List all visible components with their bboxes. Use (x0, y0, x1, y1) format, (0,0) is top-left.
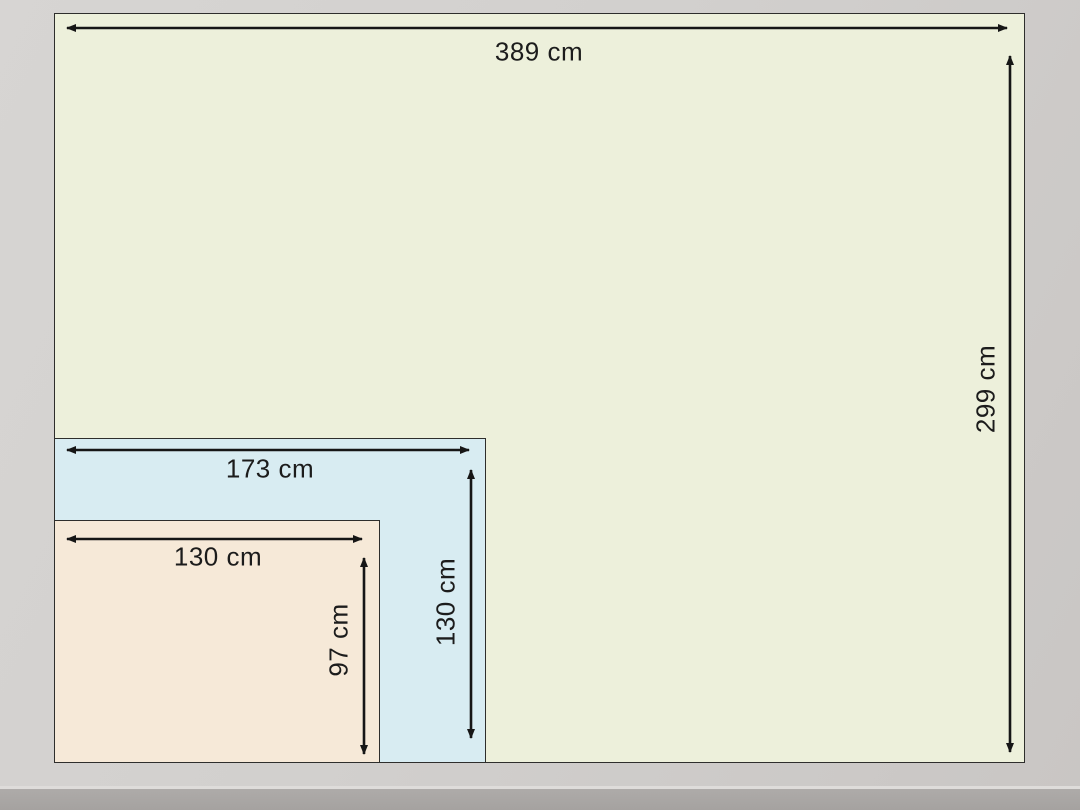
width-dimension-label-medium: 173 cm (226, 454, 314, 485)
width-dimension-label-small: 130 cm (174, 542, 262, 573)
height-dimension-label-large: 299 cm (971, 345, 1002, 433)
width-dimension-label-large: 389 cm (495, 37, 583, 68)
height-dimension-label-small: 97 cm (324, 603, 355, 676)
diagram-canvas: 389 cm 299 cm 173 cm 130 cm 130 cm 97 cm (0, 0, 1080, 810)
height-dimension-label-medium: 130 cm (431, 558, 462, 646)
footer-dark-band (0, 789, 1080, 810)
